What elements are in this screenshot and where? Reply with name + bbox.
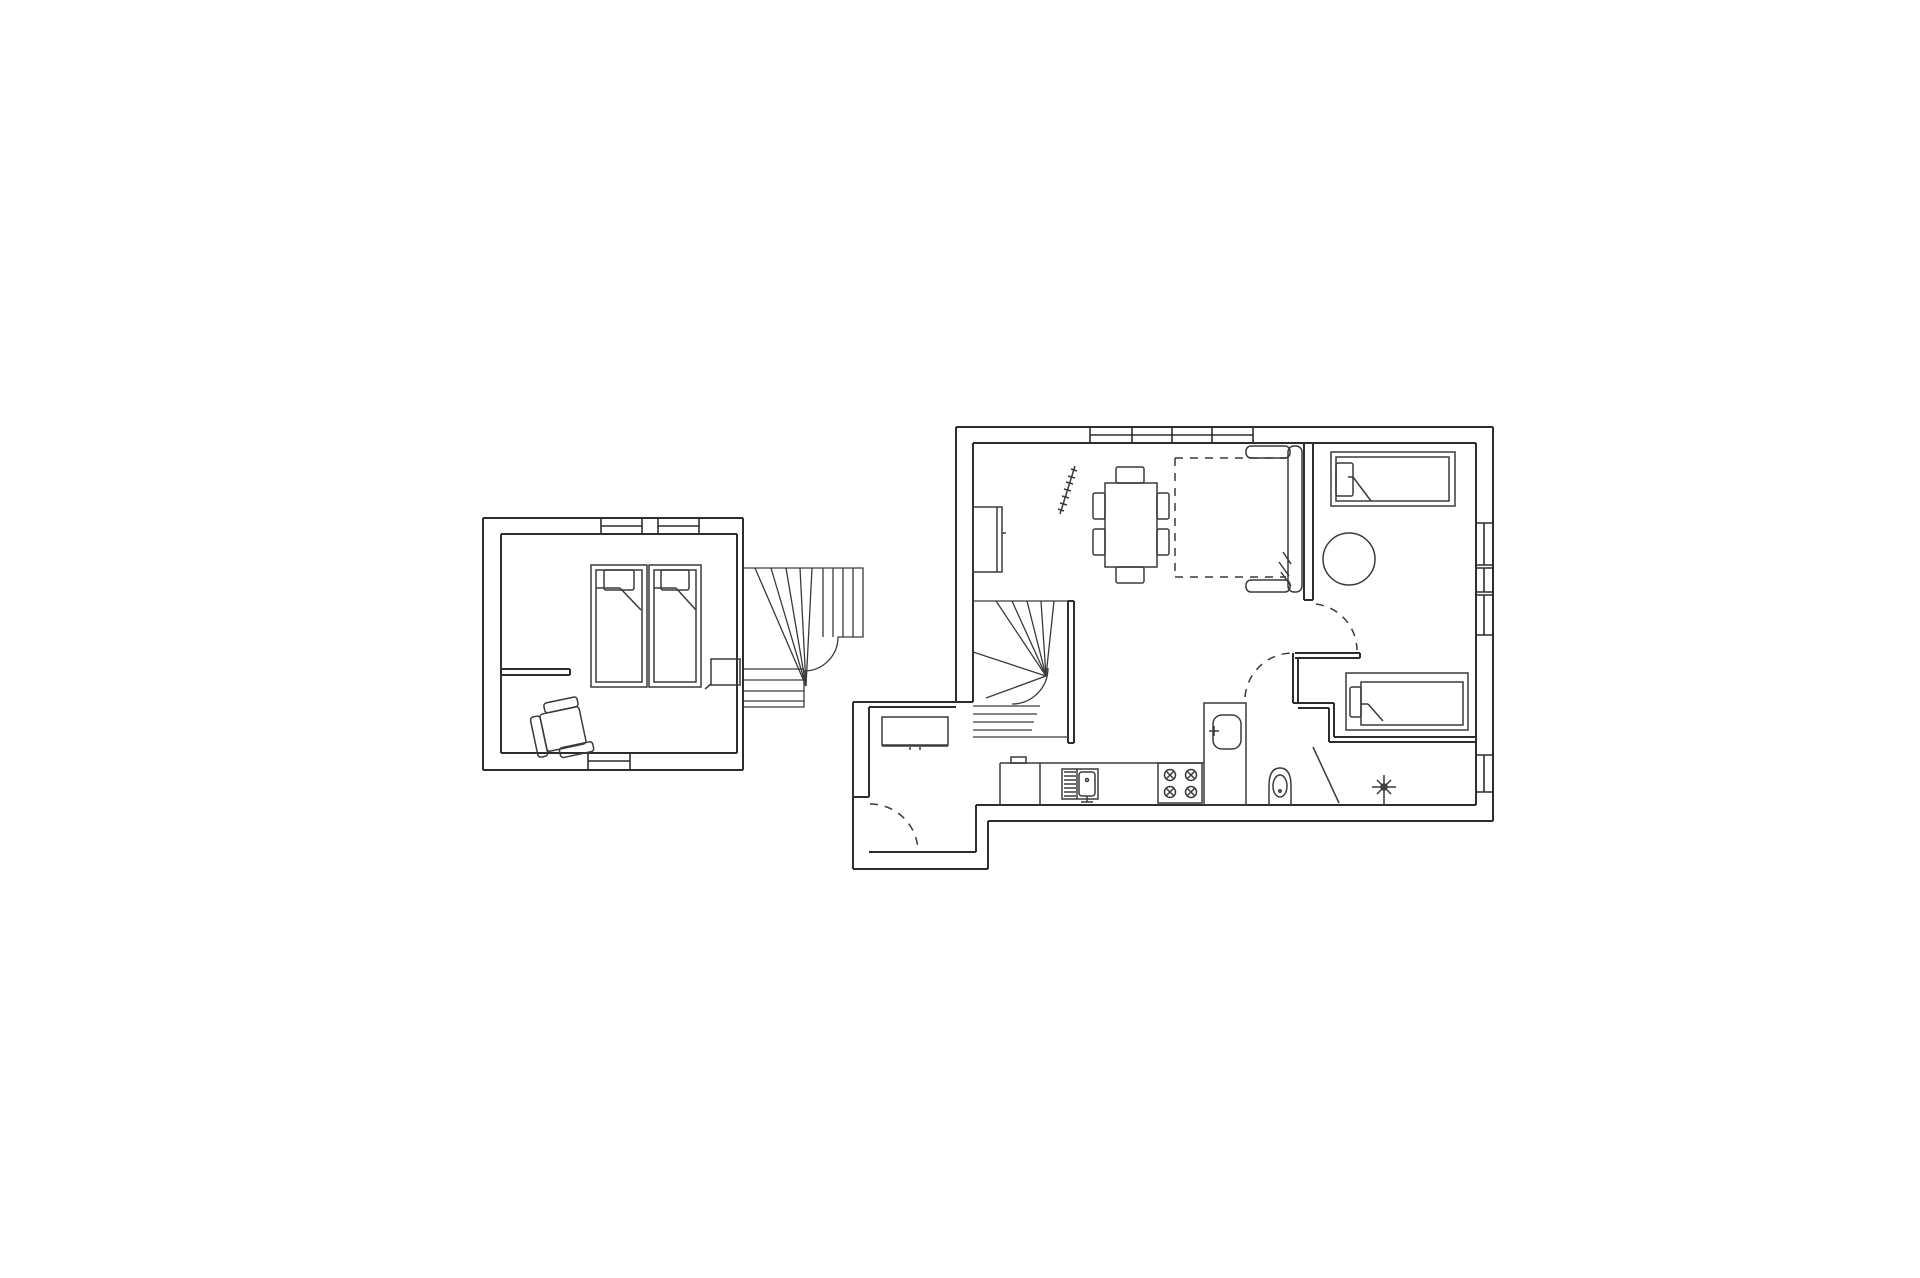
wall-cabinet xyxy=(973,507,1006,572)
stove xyxy=(1158,763,1202,803)
floor-plan-canvas xyxy=(0,0,1920,1278)
floorplan-document xyxy=(0,0,1920,1278)
door-swings xyxy=(870,604,1357,852)
dining-table xyxy=(1093,467,1169,583)
upper-floor-plan xyxy=(483,518,863,770)
radiator xyxy=(1058,466,1077,514)
interior-walls xyxy=(1068,443,1476,743)
hall-sideboard xyxy=(882,717,948,750)
partition-wall xyxy=(501,669,570,675)
round-table xyxy=(1323,533,1375,585)
bed-top-right xyxy=(1331,452,1455,506)
window-top xyxy=(601,518,699,534)
bed-bottom-right xyxy=(1346,673,1468,730)
exterior-walls xyxy=(483,518,743,770)
sofa xyxy=(1246,446,1302,592)
bed-right xyxy=(649,565,701,687)
ground-floor-plan xyxy=(853,427,1493,869)
door-leaf xyxy=(1313,747,1339,803)
desk xyxy=(705,659,740,689)
kitchen-counter xyxy=(1000,757,1204,805)
bath-vanity-sink xyxy=(1204,703,1246,805)
window-bottom xyxy=(588,753,630,770)
sofa-bed-outline xyxy=(1175,458,1286,577)
window-top-band xyxy=(1090,427,1253,443)
stairs-upper xyxy=(743,568,863,707)
lamp-symbol xyxy=(1372,775,1396,805)
bed-left xyxy=(591,565,647,687)
windows-right-wall xyxy=(1476,523,1493,792)
stairs-ground xyxy=(973,601,1068,737)
kitchen-sink xyxy=(1062,769,1098,802)
toilet xyxy=(1269,768,1291,805)
